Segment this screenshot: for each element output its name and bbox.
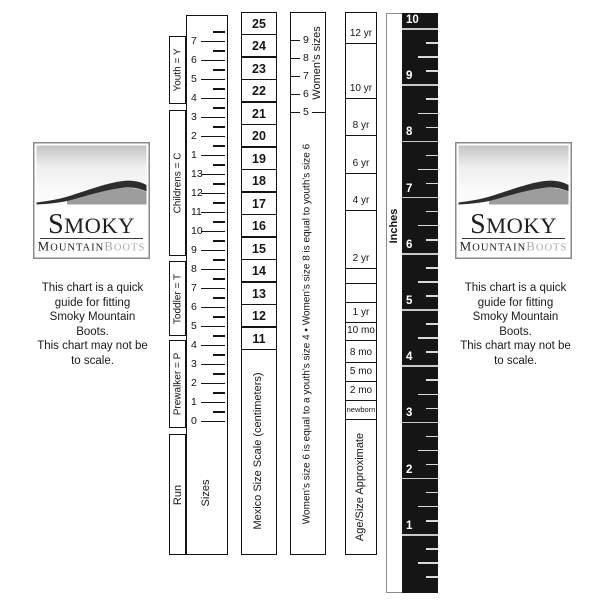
size-class-bracket-label: Childrens = C: [172, 153, 183, 214]
inch-number: 5: [406, 295, 412, 308]
size-tick-label: 12: [191, 187, 203, 200]
size-tick-label: 4: [191, 339, 197, 352]
size-tick-minor: [213, 240, 225, 242]
inch-half-tick: [418, 506, 438, 508]
size-class-bracket-label: Youth = Y: [172, 48, 183, 91]
inch-number: 1: [406, 520, 412, 533]
womens-tick: [291, 76, 300, 78]
age-cell-label: 12 yr: [346, 27, 376, 41]
inch-number: 8: [406, 126, 412, 139]
age-cell-label: 5 mo: [346, 365, 376, 379]
size-tick-label: 5: [191, 320, 197, 333]
size-tick-major: [201, 402, 225, 404]
age-cell-label: newborn: [346, 403, 376, 417]
age-ruler-label: Age/Size Approximate: [354, 433, 366, 541]
inch-half-tick: [418, 394, 438, 396]
inch-quarter-tick: [426, 98, 438, 100]
brand-logo-graphic: SMOKY MOUNTAINBOOTS: [33, 142, 150, 259]
mexico-size-value: 20: [242, 129, 276, 143]
size-tick-minor: [213, 31, 225, 33]
inches-label-strip: Inches: [386, 13, 403, 593]
age-cell-divider: [346, 362, 376, 363]
inch-mark-line: [402, 28, 438, 30]
inch-half-tick: [418, 281, 438, 283]
age-cell-divider: [346, 268, 376, 269]
size-tick-minor: [213, 278, 225, 280]
size-tick-minor: [213, 88, 225, 90]
inch-quarter-tick: [426, 379, 438, 381]
age-cell-label: 10 mo: [346, 324, 376, 338]
age-cell-label: 8 yr: [346, 119, 376, 133]
age-cell-label: 6 yr: [346, 157, 376, 171]
womens-ruler-label: Women's sizes: [311, 26, 323, 99]
inch-quarter-tick: [426, 464, 438, 466]
logo-wordmark-primary: SMOKY: [48, 209, 135, 240]
size-tick-label: 7: [191, 282, 197, 295]
mexico-size-value: 14: [242, 264, 276, 278]
size-tick-major: [201, 383, 225, 385]
womens-tick: [291, 112, 300, 114]
logo-wordmark-primary: SMOKY: [470, 209, 557, 240]
mexico-size-value: 15: [242, 242, 276, 256]
inch-quarter-tick: [426, 295, 438, 297]
size-tick-minor: [213, 183, 225, 185]
mexico-size-value: 12: [242, 309, 276, 323]
inch-quarter-tick: [426, 520, 438, 522]
inch-quarter-tick: [426, 351, 438, 353]
size-tick-minor: [213, 411, 225, 413]
mexico-size-value: 16: [242, 219, 276, 233]
age-cell-divider: [346, 340, 376, 341]
mexico-size-value: 19: [242, 152, 276, 166]
mexico-size-value: 13: [242, 287, 276, 301]
size-tick-label: 3: [191, 111, 197, 124]
size-tick-minor: [213, 335, 225, 337]
inch-half-tick: [418, 337, 438, 339]
womens-tick: [291, 58, 300, 60]
age-cell-divider: [346, 400, 376, 401]
inch-quarter-tick: [426, 436, 438, 438]
size-tick-major: [201, 364, 225, 366]
inch-number: 7: [406, 183, 412, 196]
inch-quarter-tick: [426, 548, 438, 550]
size-tick-minor: [213, 107, 225, 109]
womens-tick-label: 6: [303, 88, 309, 101]
size-tick-major: [201, 250, 225, 252]
age-cell-label: 1 yr: [346, 306, 376, 320]
age-cell-label: 8 mo: [346, 346, 376, 360]
womens-tick-label: 9: [303, 34, 309, 47]
inch-quarter-tick: [426, 211, 438, 213]
size-tick-label: 4: [191, 92, 197, 105]
mexico-size-value: 17: [242, 197, 276, 211]
inch-quarter-tick: [426, 127, 438, 129]
run-column: Run: [169, 434, 186, 555]
inch-number: 2: [406, 464, 412, 477]
size-tick-major: [201, 155, 225, 157]
size-tick-label: 11: [191, 206, 202, 219]
inch-mark-line: [402, 141, 438, 143]
size-class-bracket-label: Toddler = T: [172, 273, 183, 323]
age-cell-divider: [346, 98, 376, 99]
mexico-cell-divider: [242, 79, 276, 80]
mexico-cell-divider: [242, 304, 276, 305]
inch-half-tick: [418, 562, 438, 564]
inch-mark-line: [402, 253, 438, 255]
size-tick-major: [201, 269, 225, 271]
size-tick-minor: [213, 69, 225, 71]
size-tick-major: [201, 60, 225, 62]
size-tick-label: 2: [191, 130, 197, 143]
size-tick-label: 13: [191, 168, 203, 181]
womens-ruler: Women's sizes Women's size 6 is equal to…: [290, 12, 326, 555]
size-tick-label: 0: [191, 415, 197, 428]
womens-tick: [291, 40, 300, 42]
mexico-cell-divider: [242, 146, 276, 147]
inch-quarter-tick: [426, 576, 438, 578]
mexico-cell-divider: [242, 56, 276, 57]
size-tick-major: [201, 79, 225, 81]
inch-mark-line: [402, 365, 438, 367]
inch-half-tick: [418, 56, 438, 58]
inch-quarter-tick: [426, 492, 438, 494]
size-tick-label: 1: [191, 149, 197, 162]
size-chart-canvas: SMOKY MOUNTAINBOOTS SMOKY MOUNTAINBOOTS …: [0, 0, 608, 608]
size-tick-minor: [213, 221, 225, 223]
inch-mark-line: [402, 534, 438, 536]
sizes-ruler-label: Sizes: [200, 480, 212, 507]
mexico-size-value: 23: [242, 62, 276, 76]
size-tick-label: 3: [191, 358, 197, 371]
inch-quarter-tick: [426, 323, 438, 325]
size-class-bracket: Prewalker = P: [169, 340, 186, 428]
age-cell-divider: [346, 210, 376, 211]
size-tick-minor: [213, 354, 225, 356]
mexico-cell-divider: [242, 214, 276, 215]
mexico-size-value: 18: [242, 174, 276, 188]
inch-quarter-tick: [426, 70, 438, 72]
womens-tick-label: 7: [303, 70, 309, 83]
womens-tick-label: 5: [303, 106, 309, 119]
size-tick-major: [201, 345, 225, 347]
inch-quarter-tick: [426, 183, 438, 185]
size-tick-major: [201, 421, 225, 423]
size-class-bracket: Toddler = T: [169, 261, 186, 336]
mexico-cell-divider: [242, 124, 276, 125]
brand-logo-right: SMOKY MOUNTAINBOOTS: [455, 142, 572, 259]
size-tick-major: [201, 41, 225, 43]
size-tick-minor: [213, 164, 225, 166]
size-tick-major: [201, 307, 225, 309]
size-tick-minor: [213, 373, 225, 375]
inch-mark-line: [402, 309, 438, 311]
womens-conversion-note: Women's size 6 is equal to a youth's siz…: [302, 144, 313, 524]
size-tick-label: 8: [191, 263, 197, 276]
mexico-ruler-label: Mexico Size Scale (centimeters): [252, 372, 264, 529]
size-tick-minor: [213, 50, 225, 52]
mexico-cell-divider: [242, 349, 276, 350]
age-cell-divider: [346, 419, 376, 420]
mexico-cell-divider: [242, 259, 276, 260]
size-tick-label: 1: [191, 396, 197, 409]
womens-divider-right: [312, 112, 325, 114]
inch-quarter-tick: [426, 408, 438, 410]
inch-mark-line: [402, 197, 438, 199]
age-cell-label: 2 mo: [346, 384, 376, 398]
size-tick-minor: [213, 145, 225, 147]
inch-quarter-tick: [426, 267, 438, 269]
age-cell-divider: [346, 135, 376, 136]
mexico-cell-divider: [242, 326, 276, 327]
age-cell-divider: [346, 302, 376, 303]
size-tick-major: [201, 117, 225, 119]
size-tick-label: 6: [191, 301, 197, 314]
inch-number: 10: [406, 14, 419, 27]
inch-quarter-tick: [426, 42, 438, 44]
size-tick-major: [201, 212, 225, 214]
mexico-size-value: 24: [242, 39, 276, 53]
size-tick-minor: [213, 297, 225, 299]
mexico-cell-divider: [242, 236, 276, 237]
inch-number: 4: [406, 351, 412, 364]
inch-half-tick: [418, 450, 438, 452]
size-tick-label: 9: [191, 244, 197, 257]
size-tick-label: 5: [191, 73, 197, 86]
inches-ruler-label: Inches: [388, 209, 400, 244]
inch-quarter-tick: [426, 239, 438, 241]
age-cell-label: 4 yr: [346, 194, 376, 208]
size-tick-major: [201, 136, 225, 138]
age-ruler: Age/Size Approximate 12 yr10 yr8 yr6 yr4…: [345, 12, 377, 555]
mexico-cell-divider: [242, 101, 276, 102]
size-tick-minor: [213, 126, 225, 128]
size-tick-major: [201, 174, 225, 176]
size-tick-minor: [213, 392, 225, 394]
inch-number: 6: [406, 239, 412, 252]
mexico-size-value: 22: [242, 84, 276, 98]
age-cell-label: 2 yr: [346, 252, 376, 266]
caption-right: This chart is a quick guide for fitting …: [438, 281, 593, 368]
age-cell-divider: [346, 381, 376, 382]
size-class-bracket: Youth = Y: [169, 36, 186, 104]
size-tick-major: [201, 288, 225, 290]
mexico-size-value: 25: [242, 17, 276, 31]
inch-quarter-tick: [426, 155, 438, 157]
size-tick-major: [201, 231, 225, 233]
size-tick-major: [201, 193, 225, 195]
sizes-ruler: Sizes 7654321131211109876543210: [186, 15, 228, 555]
size-tick-label: 2: [191, 377, 197, 390]
inch-half-tick: [418, 225, 438, 227]
inch-mark-line: [402, 478, 438, 480]
womens-tick: [291, 94, 300, 96]
size-tick-minor: [213, 316, 225, 318]
mexico-cell-divider: [242, 169, 276, 170]
size-tick-label: 7: [191, 35, 197, 48]
inch-half-tick: [418, 113, 438, 115]
mexico-size-value: 21: [242, 107, 276, 121]
size-tick-label: 10: [191, 225, 203, 238]
size-tick-major: [201, 326, 225, 328]
age-cell-divider: [346, 283, 376, 284]
age-cell-divider: [346, 173, 376, 174]
age-cell-divider: [346, 43, 376, 44]
mexico-ruler: Mexico Size Scale (centimeters) 25242322…: [241, 12, 277, 555]
size-class-bracket-label: Prewalker = P: [172, 353, 183, 416]
age-cell-label: 10 yr: [346, 82, 376, 96]
inch-number: 3: [406, 407, 412, 420]
mexico-cell-divider: [242, 34, 276, 35]
inch-mark-line: [402, 422, 438, 424]
inch-half-tick: [418, 169, 438, 171]
size-tick-major: [201, 98, 225, 100]
mexico-cell-divider: [242, 281, 276, 282]
womens-tick-label: 8: [303, 52, 309, 65]
run-column-label: Run: [172, 484, 184, 504]
inches-ruler: 10987654321: [402, 13, 438, 593]
size-class-bracket: Childrens = C: [169, 110, 186, 256]
inch-number: 9: [406, 70, 412, 83]
inch-mark-line: [402, 84, 438, 86]
brand-logo-left: SMOKY MOUNTAINBOOTS: [33, 142, 150, 259]
size-tick-minor: [213, 259, 225, 261]
size-tick-label: 6: [191, 54, 197, 67]
mexico-cell-divider: [242, 191, 276, 192]
brand-logo-graphic: SMOKY MOUNTAINBOOTS: [455, 142, 572, 259]
mexico-size-value: 11: [242, 332, 276, 346]
caption-left: This chart is a quick guide for fitting …: [15, 281, 170, 368]
size-tick-minor: [213, 202, 225, 204]
